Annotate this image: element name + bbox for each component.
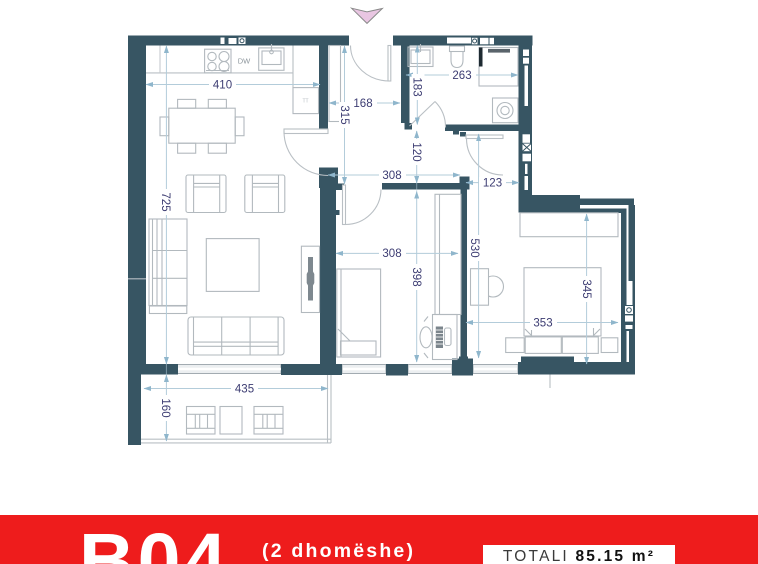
svg-text:345: 345 [580,279,592,298]
svg-text:263: 263 [452,70,471,82]
svg-text:410: 410 [213,79,232,91]
svg-text:398: 398 [410,267,422,286]
svg-text:725: 725 [159,192,171,211]
svg-text:168: 168 [353,98,372,110]
svg-text:315: 315 [338,105,350,124]
svg-text:353: 353 [533,317,552,329]
svg-text:120: 120 [410,142,422,161]
svg-text:308: 308 [382,248,401,260]
svg-text:DW: DW [238,57,251,66]
svg-text:530: 530 [468,238,480,257]
svg-text:183: 183 [411,77,423,96]
svg-text:435: 435 [235,383,254,395]
svg-text:160: 160 [159,398,171,417]
svg-text:308: 308 [382,170,401,182]
svg-text:TT: TT [302,99,308,105]
svg-text:123: 123 [483,178,502,190]
